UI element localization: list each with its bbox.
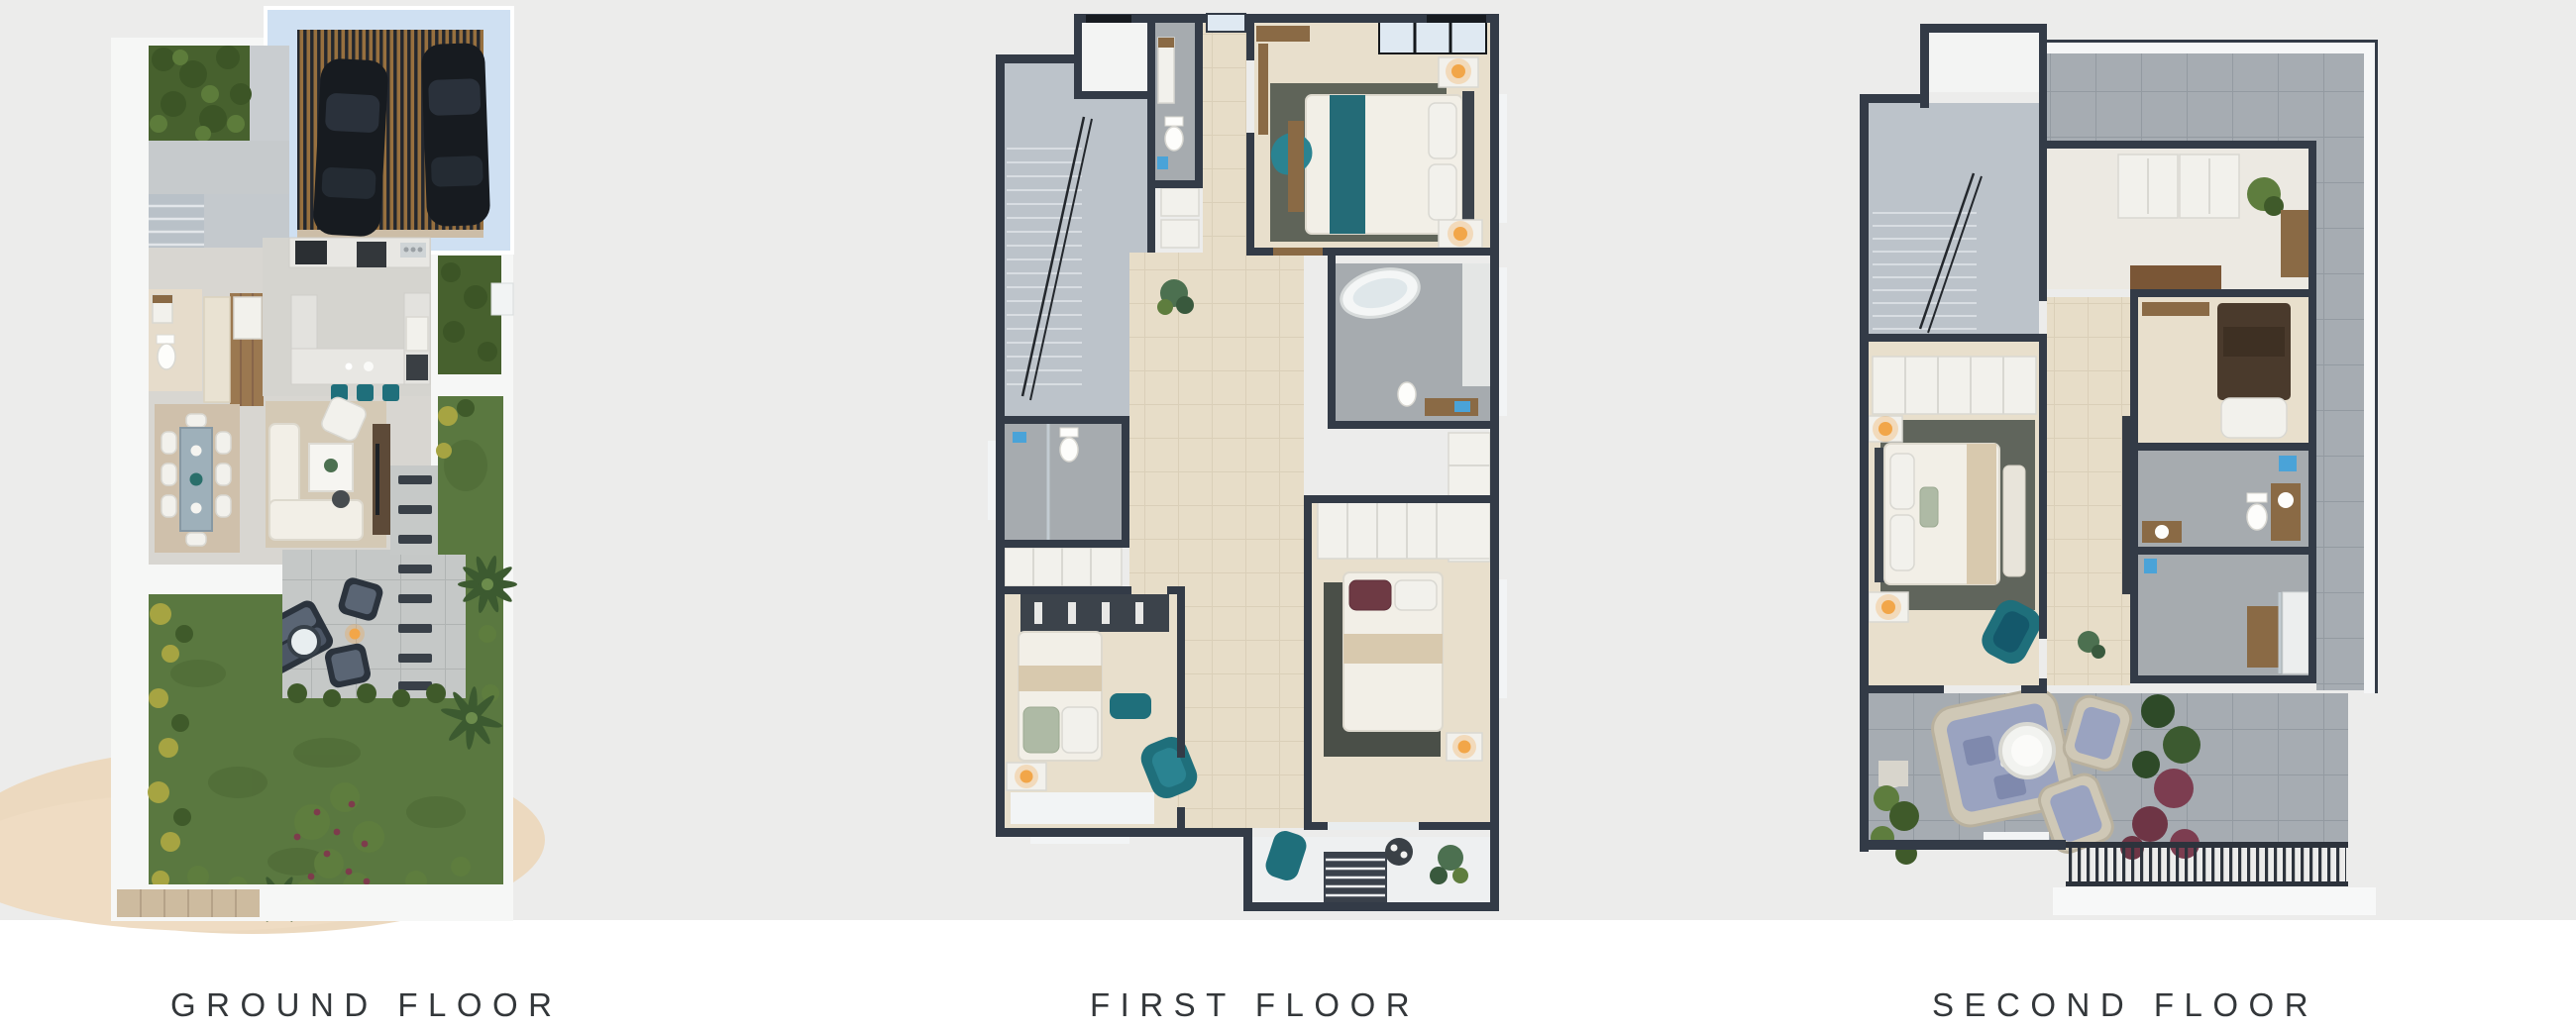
living-room [266,395,390,548]
entry-walkway [149,141,289,194]
car [312,57,388,237]
closet [1873,357,2036,414]
counter [2281,210,2308,277]
range [357,242,386,267]
bench [2003,465,2025,576]
balcony-table [1385,838,1413,866]
stair-void [1082,23,1147,92]
mudroom-bench [204,293,264,406]
towel [2144,559,2157,573]
door-leaf [1258,44,1268,135]
bed-runner [1330,95,1365,234]
stair-void [1929,33,2039,92]
first-floor-plan-image [951,0,1536,941]
powder-room [149,289,202,391]
closet-cubbies-left [1005,548,1122,586]
deck [2053,887,2376,915]
staircase [1005,63,1147,420]
cabinet [2247,606,2281,668]
balcony-railing [2053,842,2376,915]
tv [376,444,379,515]
corridor [2047,297,2130,685]
dresser [2142,302,2209,316]
hallway [1203,23,1246,253]
carport-driveway [266,8,512,253]
wardrobe [1020,594,1169,632]
laundry-basket [1157,156,1168,169]
patio-table [289,627,319,657]
staircase [1869,103,2039,334]
second-floor-plan-image [1833,0,2408,941]
fridge [406,317,428,351]
master-bedroom [1869,342,2046,685]
toilet [158,344,175,369]
lounge-terrace [1869,685,2348,865]
car [421,43,490,227]
dining-area [155,404,240,553]
bathroom-1 [2138,451,2308,547]
bathroom-2 [2138,555,2308,675]
shower-head [1013,432,1026,443]
first-floor-label: FIRST FLOOR [1090,986,1420,1024]
shower-tray [2283,592,2308,673]
toilet [2247,504,2267,530]
wood-deck [111,884,513,921]
tv-console [373,424,390,535]
garden-lamp [345,624,365,644]
side-table [332,490,350,508]
toilet [1398,382,1416,406]
toilet [1060,438,1078,462]
ground-floor-plan-image [0,0,555,941]
ground-floor-label: GROUND FLOOR [170,986,563,1024]
second-floor-label: SECOND FLOOR [1932,986,2318,1024]
toilet [1165,127,1183,151]
kitchen [263,238,431,401]
shelf [2130,265,2221,291]
pillow [2221,398,2287,438]
single-bedroom [2138,297,2308,443]
bench [1288,121,1304,212]
balcony-steps [1324,852,1387,905]
closet-boxes [1161,188,1199,248]
vanity [2271,483,2301,541]
headboard [1462,91,1474,238]
towel [1454,401,1470,412]
ottoman [1110,693,1151,719]
cooktop [295,241,327,264]
laundry-room [2047,149,2308,291]
towel [2279,456,2297,471]
